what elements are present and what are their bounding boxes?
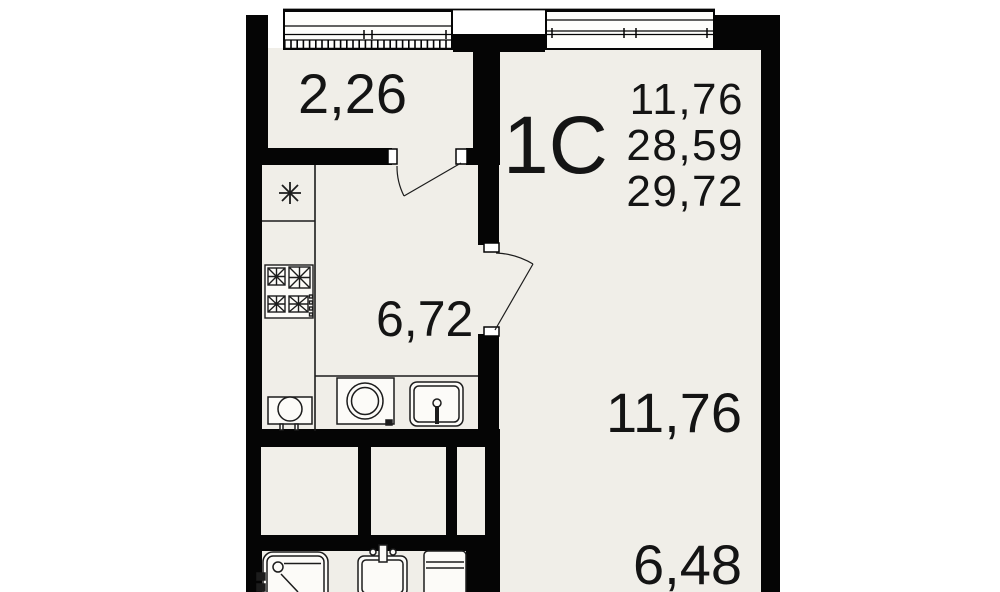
kitchen-area-label: 6,72 — [376, 294, 473, 344]
living-room-window-icon — [546, 11, 714, 49]
balcony-door-arc-icon — [397, 163, 461, 196]
balcony-area-label: 2,26 — [298, 66, 407, 122]
entry-door-arc-icon — [495, 253, 533, 330]
stove-icon — [265, 265, 313, 318]
hallway-area-label: 6,48 — [633, 537, 742, 592]
boiler-icon — [268, 397, 312, 430]
snowflake-icon — [279, 182, 301, 204]
living-area-summary: 11,76 — [630, 77, 744, 123]
washbasin-icon — [358, 545, 407, 592]
total-with-balcony-summary: 29,72 — [626, 169, 744, 215]
total-area-summary: 28,59 — [626, 123, 744, 169]
balcony-window-icon — [284, 11, 452, 49]
floor-plan: 2,26 1С 11,76 28,59 29,72 6,72 11,76 6,4… — [0, 0, 1000, 592]
unit-type-label: 1С — [503, 105, 608, 187]
living-room-area-label: 11,76 — [606, 385, 742, 441]
plan-linework — [0, 0, 1000, 592]
bathtub-icon — [257, 552, 328, 592]
washing-machine-icon — [337, 378, 394, 425]
toilet-icon — [424, 551, 466, 592]
kitchen-sink-icon — [410, 382, 463, 426]
